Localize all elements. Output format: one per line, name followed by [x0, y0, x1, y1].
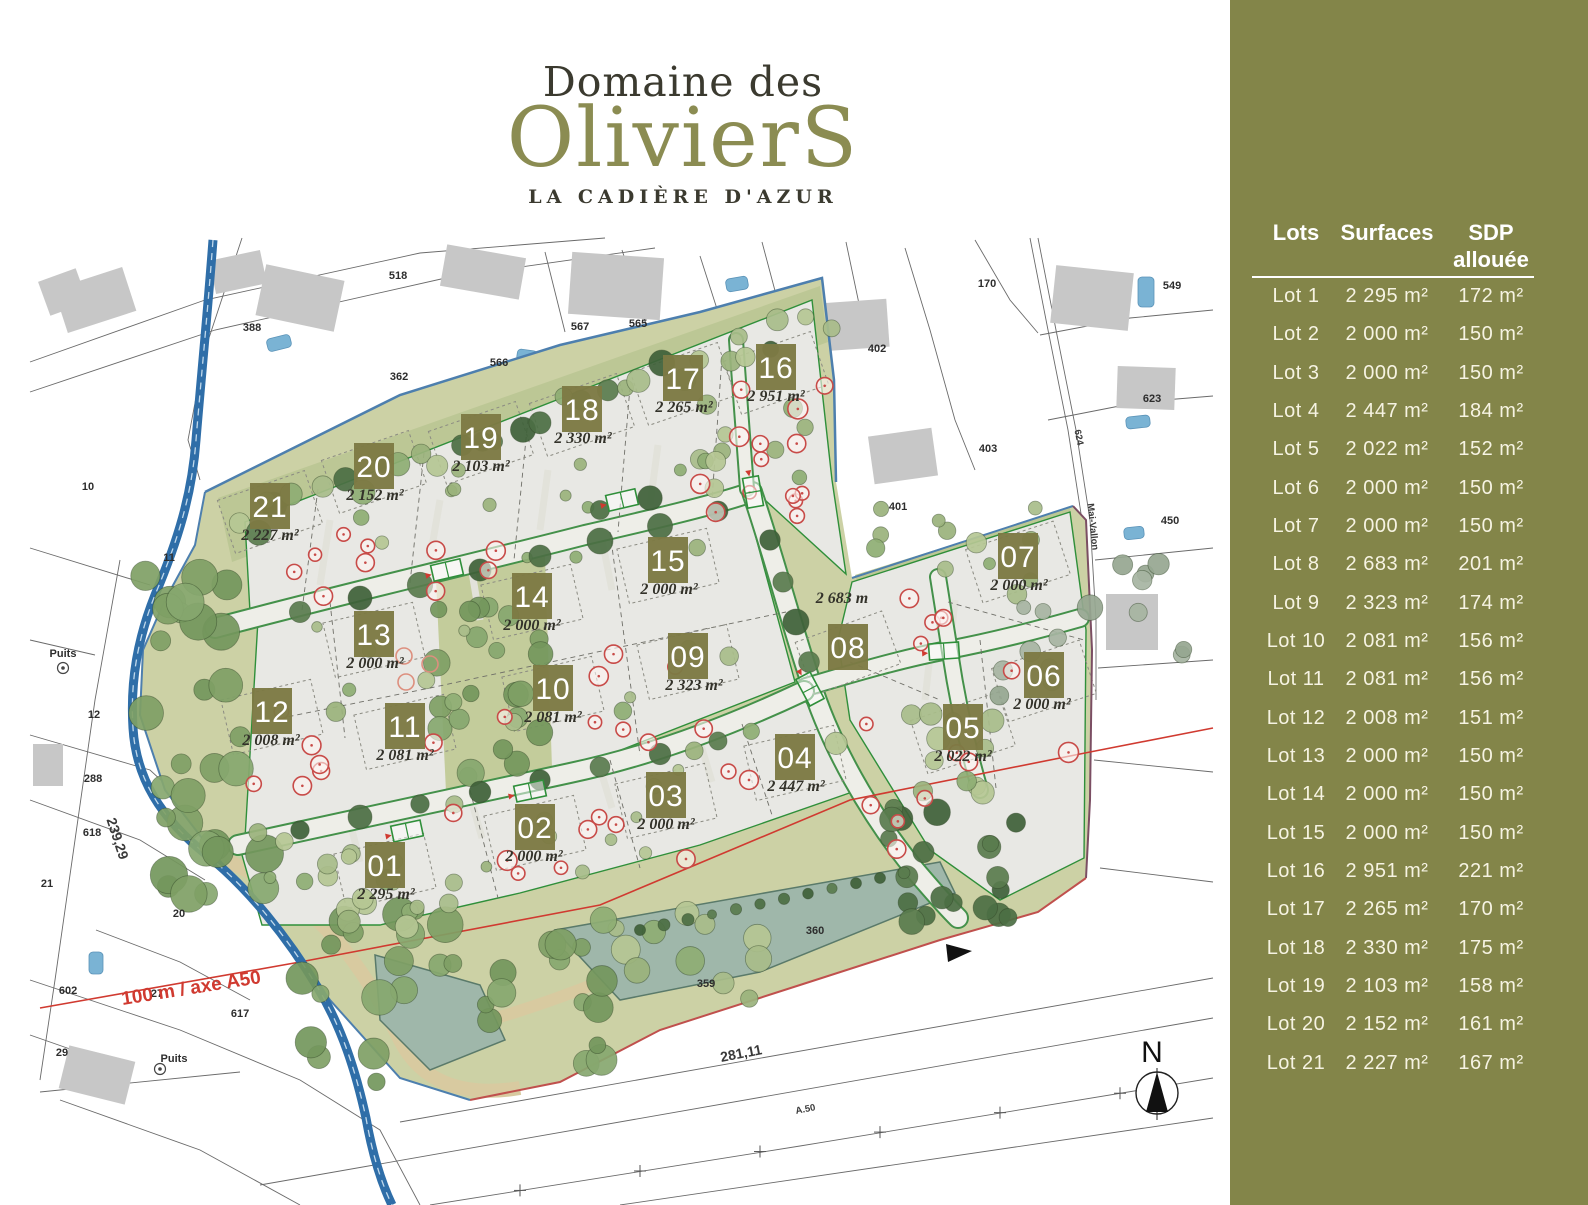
cell-sdp: 201 m²: [1420, 545, 1562, 583]
map-label-Puits: Puits: [161, 1053, 188, 1065]
cell-sdp: 150 m²: [1420, 507, 1562, 545]
lot-area-label: 2 265 m²: [654, 399, 713, 416]
map-label-Puits: Puits: [50, 648, 77, 660]
map-label-565: 565: [629, 318, 647, 330]
lot-area-label: 2 683 m: [815, 590, 868, 607]
table-row: Lot 22 000 m²150 m²: [1230, 315, 1588, 353]
map-label-170: 170: [978, 278, 996, 290]
lot-area-label: 2 447 m²: [766, 778, 825, 795]
map-label-10: 10: [82, 481, 94, 493]
lot-number: 12: [254, 696, 289, 729]
lot-area-label: 2 295 m²: [356, 886, 415, 903]
lot-number: 21: [252, 491, 287, 524]
cell-sdp: 175 m²: [1420, 929, 1562, 967]
title-oliviers: OlivierS: [398, 100, 968, 178]
map-label-20: 20: [173, 908, 185, 920]
cell-sdp: 156 m²: [1420, 660, 1562, 698]
cell-sdp: 158 m²: [1420, 967, 1562, 1005]
cell-sdp: 184 m²: [1420, 392, 1562, 430]
lot-area-label: 2 000 m²: [639, 581, 698, 598]
lot-area-label: 2 000 m²: [1012, 696, 1071, 713]
map-label-239-29: 239,29: [104, 816, 133, 862]
lot-number: 18: [564, 394, 599, 427]
lot-number: 17: [665, 363, 700, 396]
map-label-567: 567: [571, 321, 589, 333]
map-label-100-m---axe-A50: 100 m / axe A50: [120, 967, 262, 1010]
cell-sdp: 150 m²: [1420, 469, 1562, 507]
map-label-362: 362: [390, 371, 408, 383]
map-label-288: 288: [84, 773, 102, 785]
lot-area-label: 2 000 m²: [989, 577, 1048, 594]
cell-sdp: 172 m²: [1420, 277, 1562, 315]
col-header-sdp: SDP: [1420, 220, 1562, 246]
cell-sdp: 221 m²: [1420, 852, 1562, 890]
table-row: Lot 182 330 m²175 m²: [1230, 929, 1588, 967]
lot-area-label: 2 227 m²: [240, 527, 299, 544]
lot-area-label: 2 951 m²: [746, 388, 805, 405]
table-row: Lot 142 000 m²150 m²: [1230, 775, 1588, 813]
map-label-403: 403: [979, 443, 997, 455]
lot-area-label: 2 323 m²: [664, 677, 723, 694]
cell-sdp: 161 m²: [1420, 1005, 1562, 1043]
north-arrow: [1136, 1068, 1178, 1120]
cell-sdp: 156 m²: [1420, 622, 1562, 660]
lot-area-label: 2 330 m²: [553, 430, 612, 447]
cell-sdp: 151 m²: [1420, 699, 1562, 737]
lot-number: 09: [670, 641, 705, 674]
map-label-360: 360: [806, 925, 824, 937]
lot-area-label: 2 081 m²: [375, 747, 434, 764]
table-row: Lot 202 152 m²161 m²: [1230, 1005, 1588, 1043]
table-row: Lot 132 000 m²150 m²: [1230, 737, 1588, 775]
table-row: Lot 172 265 m²170 m²: [1230, 890, 1588, 928]
lot-number: 05: [945, 712, 980, 745]
lot-number: 10: [535, 673, 570, 706]
map-label-N: N: [1141, 1036, 1163, 1069]
lot-number: 02: [517, 812, 552, 845]
lot-number: 08: [830, 632, 865, 665]
lot-number: 15: [650, 545, 685, 578]
table-row: Lot 102 081 m²156 m²: [1230, 622, 1588, 660]
lot-area-label: 2 008 m²: [241, 732, 300, 749]
cell-sdp: 170 m²: [1420, 890, 1562, 928]
table-row: Lot 32 000 m²150 m²: [1230, 354, 1588, 392]
map-label-618: 618: [83, 827, 101, 839]
table-row: Lot 152 000 m²150 m²: [1230, 814, 1588, 852]
table-row: Lot 12 295 m²172 m²: [1230, 277, 1588, 315]
lot-area-label: 2 081 m²: [523, 709, 582, 726]
map-label-A-50: A.50: [795, 1102, 817, 1117]
lot-number: 20: [356, 451, 391, 484]
table-row: Lot 192 103 m²158 m²: [1230, 967, 1588, 1005]
lot-area-label: 2 000 m²: [504, 848, 563, 865]
map-label-388: 388: [243, 322, 261, 334]
map-label-566: 566: [490, 357, 508, 369]
map-label-602: 602: [59, 985, 77, 997]
lot-area-label: 2 000 m²: [502, 617, 561, 634]
lot-number: 11: [388, 711, 421, 744]
cell-sdp: 150 m²: [1420, 315, 1562, 353]
map-label-623: 623: [1143, 393, 1161, 405]
map-label-624: 624: [1071, 429, 1085, 447]
cell-sdp: 150 m²: [1420, 737, 1562, 775]
cell-sdp: 150 m²: [1420, 354, 1562, 392]
table-row: Lot 52 022 m²152 m²: [1230, 430, 1588, 468]
map-label-518: 518: [389, 270, 407, 282]
cell-sdp: 167 m²: [1420, 1044, 1562, 1082]
lot-number: 19: [463, 422, 498, 455]
table-row: Lot 42 447 m²184 m²: [1230, 392, 1588, 430]
lot-number: 01: [367, 850, 402, 883]
map-label-11: 11: [163, 552, 175, 564]
cell-sdp: 152 m²: [1420, 430, 1562, 468]
map-label-359: 359: [697, 978, 715, 990]
lot-number: 13: [356, 619, 391, 652]
lot-number: 03: [648, 780, 683, 813]
lots-table-panel: Lots Surfaces SDP allouée Lot 12 295 m²1…: [1230, 0, 1588, 1205]
lot-area-label: 2 022 m²: [933, 748, 992, 765]
lot-number: 16: [758, 352, 793, 385]
map-label-29: 29: [56, 1047, 68, 1059]
title-block: Domaine des OlivierS LA CADIÈRE D'AZUR: [398, 58, 968, 208]
cell-sdp: 174 m²: [1420, 584, 1562, 622]
cell-sdp: 150 m²: [1420, 814, 1562, 852]
map-label-549: 549: [1163, 280, 1181, 292]
map-label-12: 12: [88, 709, 100, 721]
table-row: Lot 92 323 m²174 m²: [1230, 584, 1588, 622]
cell-sdp: 150 m²: [1420, 775, 1562, 813]
table-row: Lot 162 951 m²221 m²: [1230, 852, 1588, 890]
table-row: Lot 82 683 m²201 m²: [1230, 545, 1588, 583]
map-label-617: 617: [231, 1008, 249, 1020]
map-label-450: 450: [1161, 515, 1179, 527]
lot-area-label: 2 000 m²: [345, 655, 404, 672]
lot-area-label: 2 152 m²: [345, 487, 404, 504]
map-label-21: 21: [41, 878, 53, 890]
lot-number: 14: [514, 581, 549, 614]
table-row: Lot 62 000 m²150 m²: [1230, 469, 1588, 507]
lot-number: 06: [1026, 660, 1061, 693]
map-label-401: 401: [889, 501, 907, 513]
table-body: Lot 12 295 m²172 m²Lot 22 000 m²150 m²Lo…: [1230, 277, 1588, 1082]
title-location: LA CADIÈRE D'AZUR: [398, 186, 968, 208]
lot-number: 07: [1000, 541, 1035, 574]
table-row: Lot 122 008 m²151 m²: [1230, 699, 1588, 737]
table-row: Lot 72 000 m²150 m²: [1230, 507, 1588, 545]
table-row: Lot 212 227 m²167 m²: [1230, 1044, 1588, 1082]
lot-area-label: 2 103 m²: [451, 458, 510, 475]
lot-area-label: 2 000 m²: [636, 816, 695, 833]
map-label-402: 402: [868, 343, 886, 355]
table-row: Lot 112 081 m²156 m²: [1230, 660, 1588, 698]
lot-number: 04: [777, 742, 812, 775]
col-header-sdp-2: allouée: [1420, 247, 1562, 273]
